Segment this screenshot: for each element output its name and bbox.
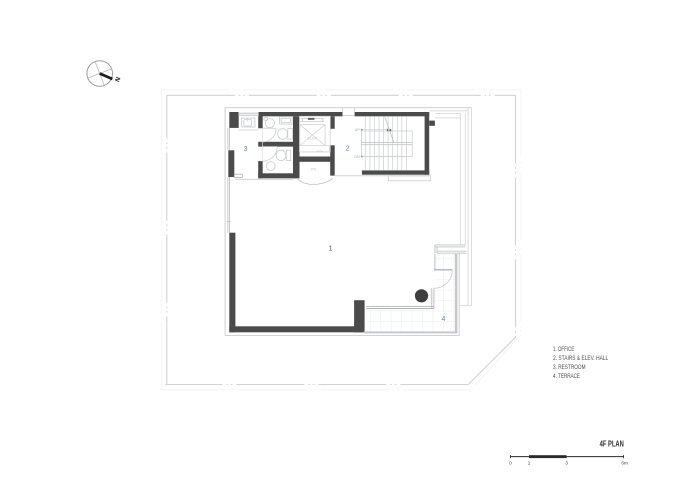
svg-text:3: 3 bbox=[244, 146, 248, 153]
svg-text:1: 1 bbox=[528, 460, 531, 465]
svg-text:1: 1 bbox=[328, 245, 332, 252]
svg-text:3: 3 bbox=[565, 460, 568, 465]
svg-text:PS: PS bbox=[311, 167, 316, 171]
svg-text:3. RESTROOM: 3. RESTROOM bbox=[553, 364, 586, 371]
svg-text:0: 0 bbox=[509, 460, 512, 465]
svg-text:6m: 6m bbox=[621, 460, 628, 465]
svg-text:4. TERRACE: 4. TERRACE bbox=[553, 373, 580, 380]
svg-text:ELEV: ELEV bbox=[308, 136, 318, 140]
svg-text:4: 4 bbox=[442, 316, 446, 323]
svg-text:1. OFFICE: 1. OFFICE bbox=[553, 346, 575, 353]
svg-text:4F PLAN: 4F PLAN bbox=[600, 440, 624, 449]
svg-text:DN: DN bbox=[354, 155, 360, 159]
svg-text:2: 2 bbox=[346, 146, 350, 153]
svg-text:2. STAIRS & ELEV. HALL: 2. STAIRS & ELEV. HALL bbox=[553, 355, 608, 362]
svg-text:UP: UP bbox=[355, 128, 361, 132]
